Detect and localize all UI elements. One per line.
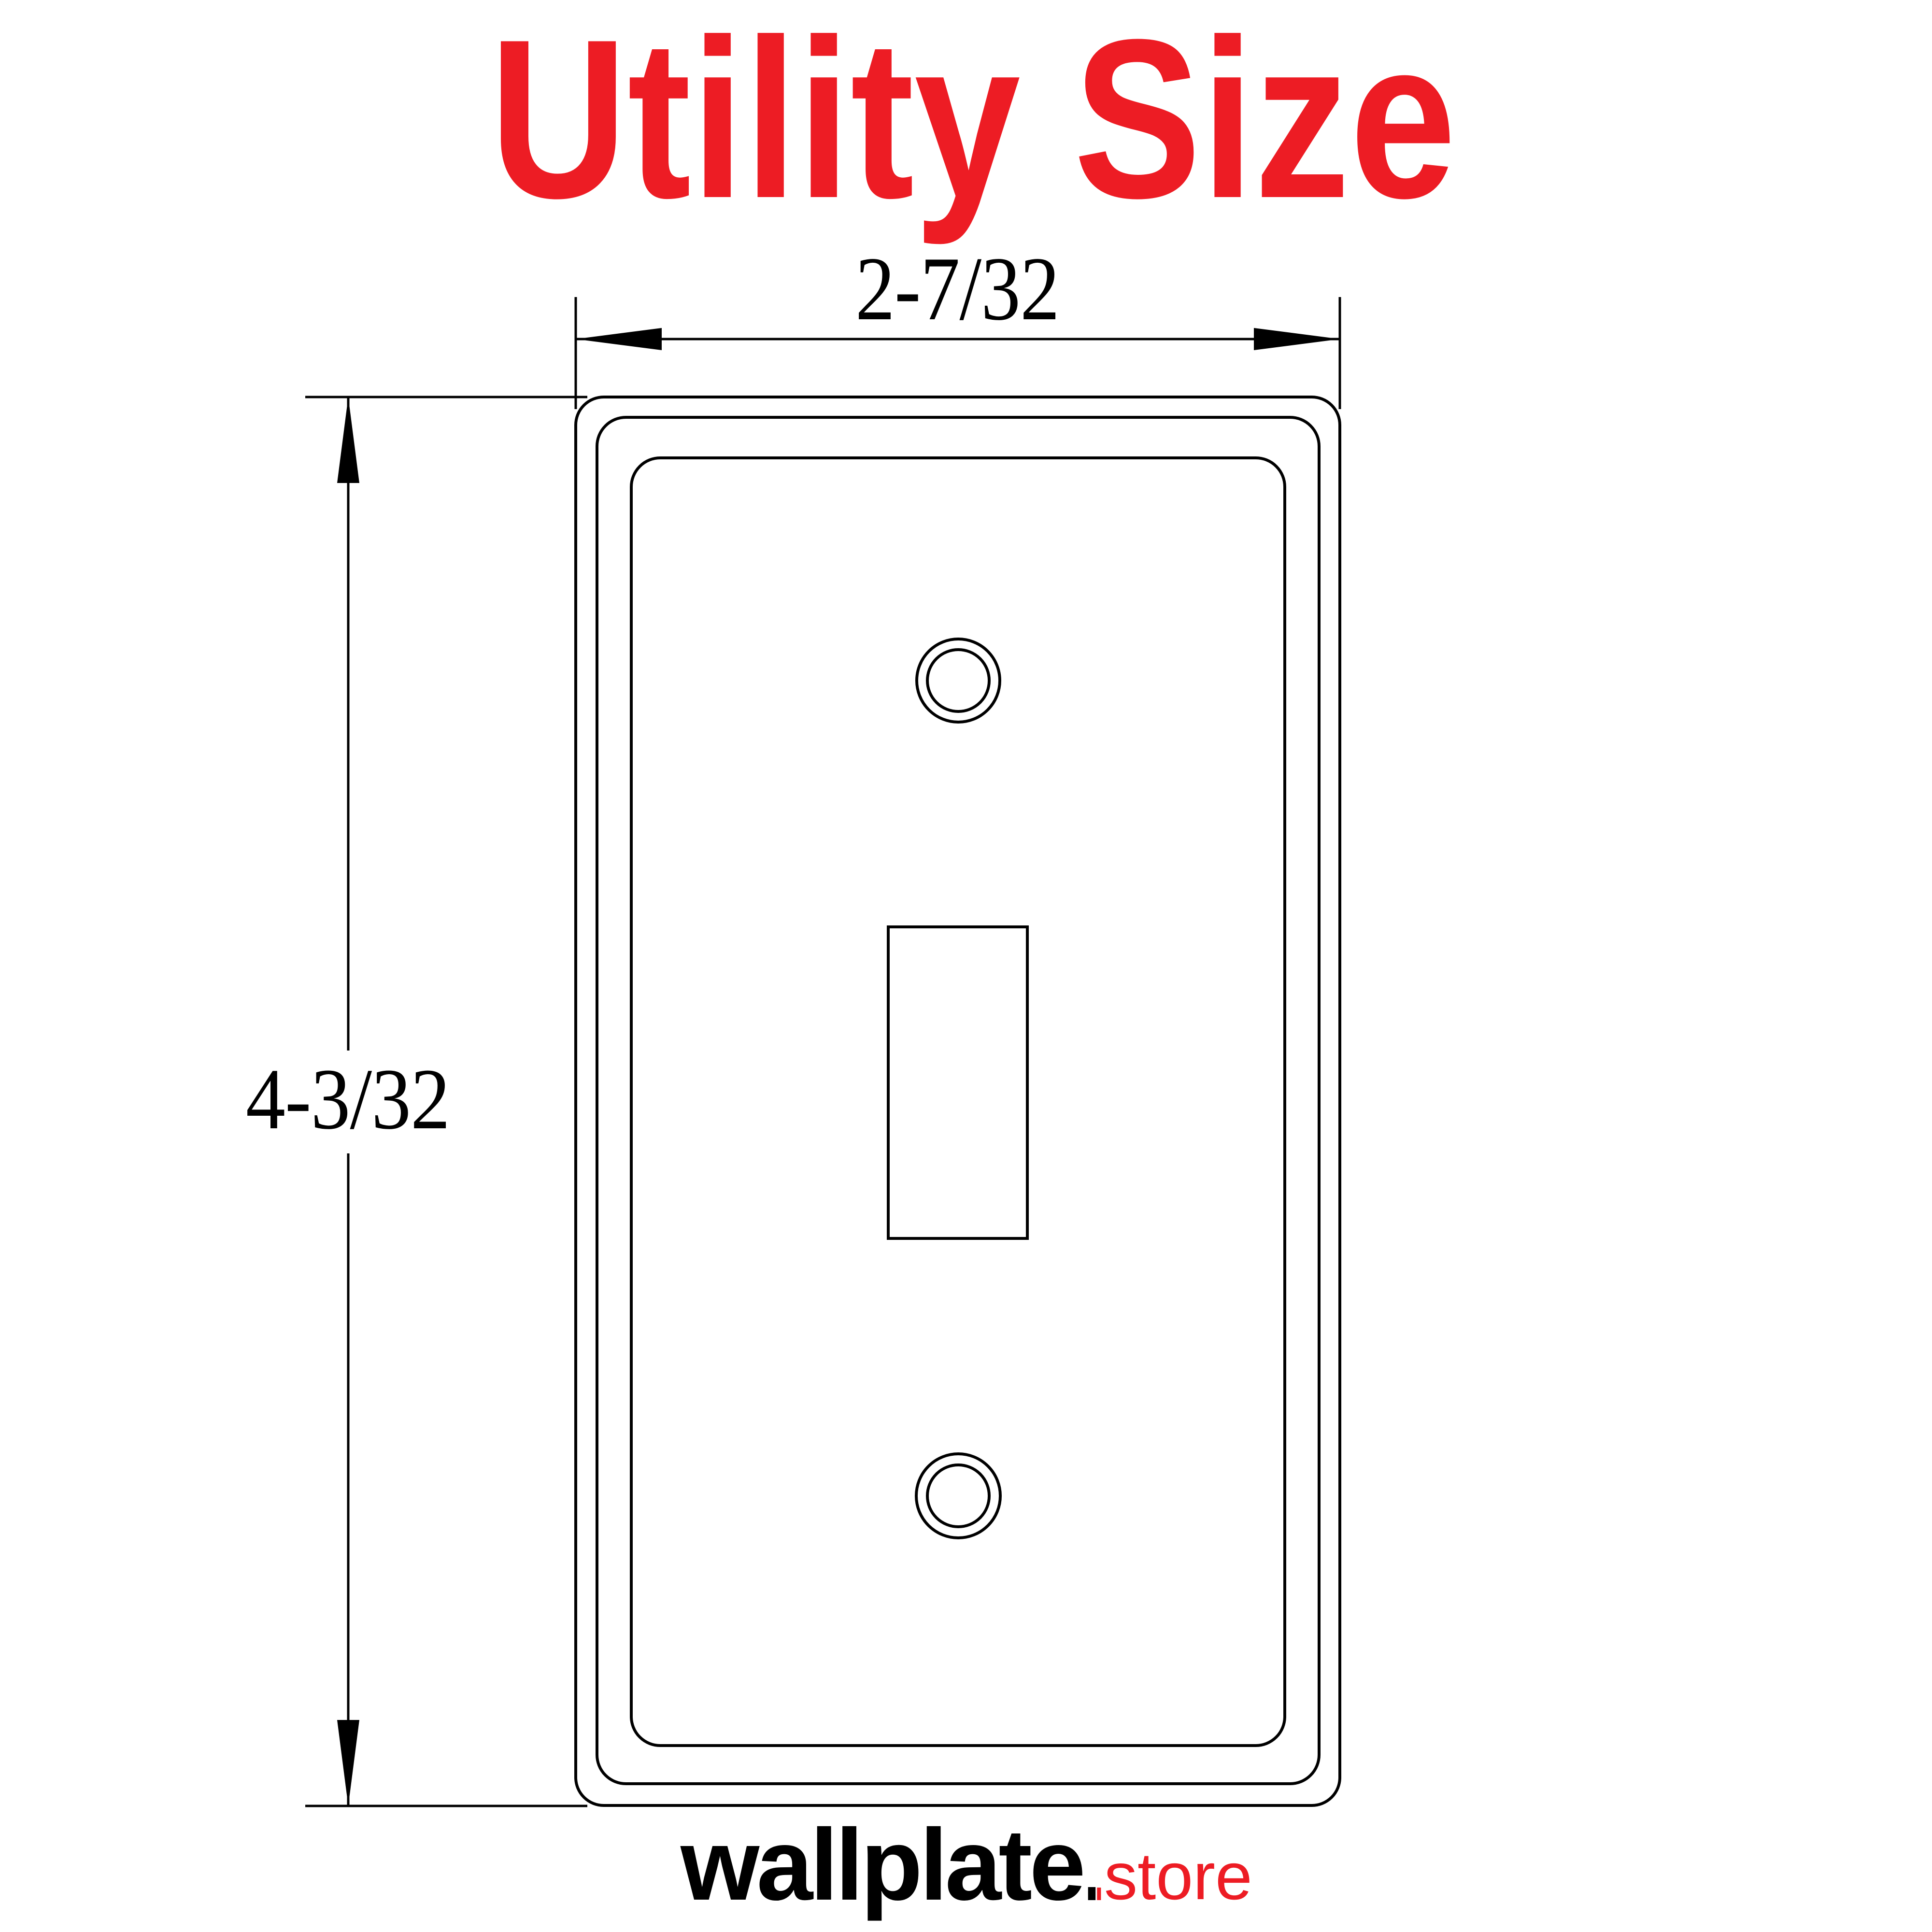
svg-text:store: store bbox=[1104, 1839, 1252, 1914]
svg-text:Utility Size: Utility Size bbox=[489, 0, 1456, 247]
svg-text:wallplate: wallplate bbox=[680, 1808, 1083, 1921]
svg-text:4-3/32: 4-3/32 bbox=[246, 1051, 450, 1148]
svg-text:2-7/32: 2-7/32 bbox=[855, 239, 1059, 340]
